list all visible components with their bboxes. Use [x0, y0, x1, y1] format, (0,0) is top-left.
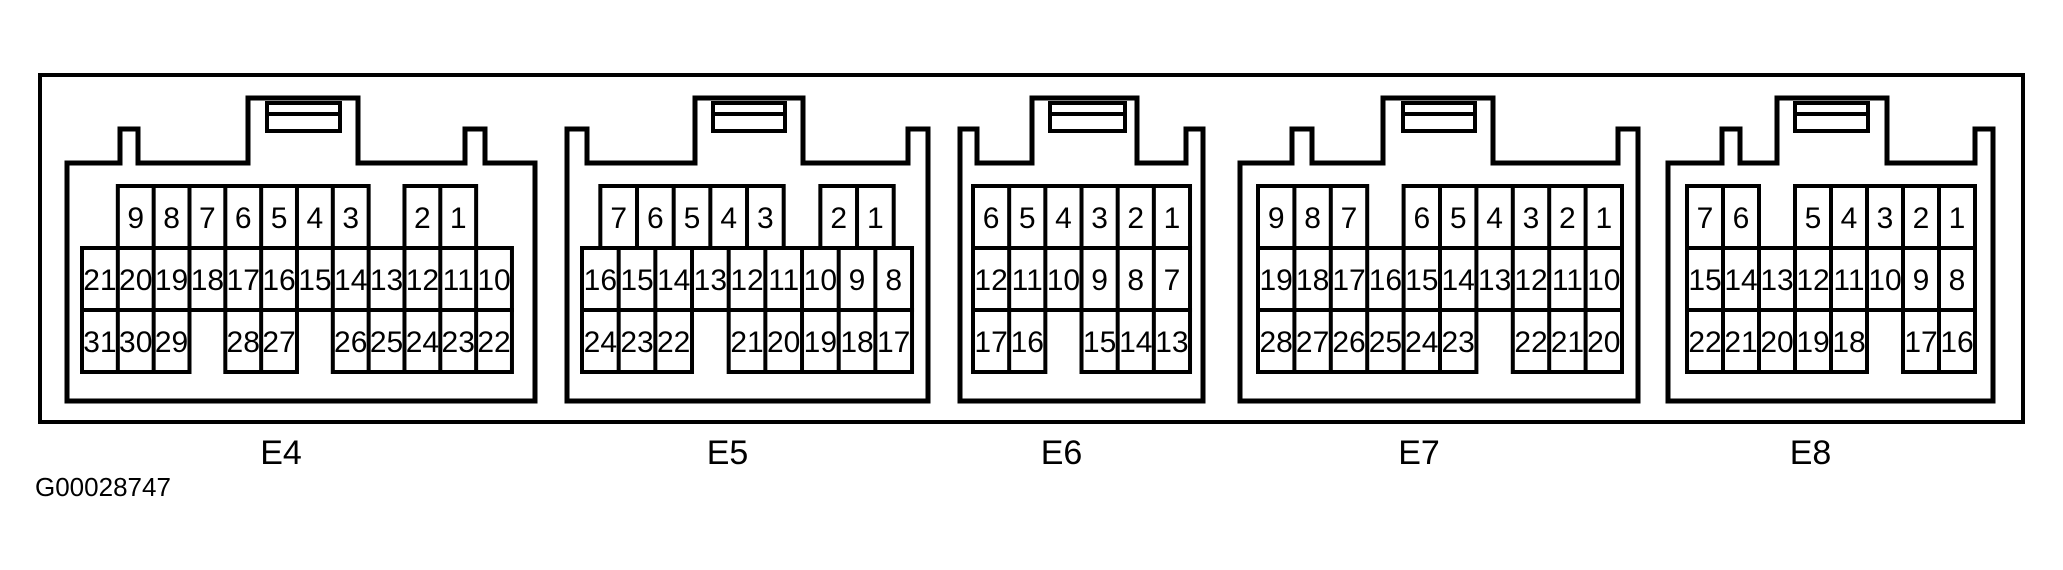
pin-number: 17 [974, 326, 1007, 359]
pin-number: 25 [1369, 326, 1402, 359]
pin-number: 1 [1949, 202, 1966, 235]
pin-number: 14 [1119, 326, 1152, 359]
pin-number: 21 [83, 264, 116, 297]
pin-number: 24 [406, 326, 439, 359]
pin-number: 12 [1514, 264, 1547, 297]
pin-number: 18 [840, 326, 873, 359]
connector-E6: 6543211211109871716151413E6 [960, 98, 1203, 472]
pin-number: 14 [657, 264, 690, 297]
pin-number: 24 [1405, 326, 1438, 359]
pin-group-middle: 1615141312111098 [582, 248, 912, 310]
pin-group-top: 21 [820, 186, 893, 248]
pin-number: 17 [877, 326, 910, 359]
pin-number: 6 [983, 202, 1000, 235]
connector-E8: 76543211514131211109822212019181716E8 [1668, 98, 1993, 472]
pin-number: 15 [620, 264, 653, 297]
pin-number: 15 [1688, 264, 1721, 297]
pin-number: 8 [163, 202, 180, 235]
pin-number: 17 [1332, 264, 1365, 297]
pin-number: 2 [1913, 202, 1930, 235]
pin-number: 22 [657, 326, 690, 359]
connector-E4: 9876543212120191817161514131211103130292… [67, 98, 535, 472]
pin-number: 13 [1478, 264, 1511, 297]
pin-number: 6 [1413, 202, 1430, 235]
pin-number: 5 [1805, 202, 1822, 235]
pin-number: 14 [334, 264, 367, 297]
pin-number: 26 [334, 326, 367, 359]
pin-number: 14 [1442, 264, 1475, 297]
pin-group-top: 654321 [973, 186, 1190, 248]
pin-number: 13 [1155, 326, 1188, 359]
pin-number: 29 [155, 326, 188, 359]
pin-number: 18 [1832, 326, 1865, 359]
pin-number: 7 [1697, 202, 1714, 235]
connector-pinout-figure: 9876543212120191817161514131211103130292… [0, 0, 2063, 570]
pin-group-middle: 15141312111098 [1687, 248, 1975, 310]
pin-number: 13 [370, 264, 403, 297]
pin-number: 5 [1450, 202, 1467, 235]
pin-number: 4 [1486, 202, 1503, 235]
pin-number: 16 [1940, 326, 1973, 359]
pin-number: 1 [867, 202, 884, 235]
pin-number: 28 [1260, 326, 1293, 359]
pin-number: 7 [1164, 264, 1181, 297]
figure-code: G00028747 [35, 472, 171, 503]
pin-number: 5 [684, 202, 701, 235]
connector-label: E4 [260, 434, 302, 472]
pin-group-top: 987 [1258, 186, 1367, 248]
pin-number: 20 [1587, 326, 1620, 359]
connector-E7: 9876543211918171615141312111028272625242… [1240, 98, 1638, 472]
pin-number: 15 [298, 264, 331, 297]
pin-group-bottom: 313029 [82, 310, 189, 372]
pin-number: 17 [227, 264, 260, 297]
pin-number: 4 [1841, 202, 1858, 235]
pin-number: 6 [647, 202, 664, 235]
connector-label: E7 [1398, 434, 1440, 472]
pin-group-bottom: 1716 [973, 310, 1045, 372]
pinout-diagram: 9876543212120191817161514131211103130292… [0, 0, 2063, 570]
pin-number: 8 [885, 264, 902, 297]
pin-number: 3 [342, 202, 359, 235]
pin-number: 1 [1595, 202, 1612, 235]
pin-group-middle: 19181716151413121110 [1258, 248, 1622, 310]
pin-number: 24 [584, 326, 617, 359]
pin-number: 6 [1733, 202, 1750, 235]
pin-number: 3 [1523, 202, 1540, 235]
pin-number: 2 [1559, 202, 1576, 235]
pin-number: 9 [1268, 202, 1285, 235]
pin-number: 3 [1877, 202, 1894, 235]
pin-group-bottom: 1716 [1903, 310, 1975, 372]
pin-number: 23 [442, 326, 475, 359]
pin-number: 10 [477, 264, 510, 297]
pin-number: 7 [610, 202, 627, 235]
pin-number: 27 [1296, 326, 1329, 359]
pin-number: 2 [1127, 202, 1144, 235]
pin-group-middle: 212019181716151413121110 [82, 248, 512, 310]
pin-number: 19 [155, 264, 188, 297]
pin-number: 7 [199, 202, 216, 235]
pin-number: 16 [262, 264, 295, 297]
pin-number: 19 [804, 326, 837, 359]
pin-group-top: 21 [404, 186, 476, 248]
pin-number: 7 [1341, 202, 1358, 235]
pin-number: 10 [1868, 264, 1901, 297]
pin-number: 13 [694, 264, 727, 297]
pin-group-top: 9876543 [118, 186, 369, 248]
pin-number: 21 [1724, 326, 1757, 359]
pin-number: 11 [1833, 264, 1864, 297]
pin-number: 27 [262, 326, 295, 359]
pin-number: 28 [227, 326, 260, 359]
pin-group-top: 76 [1687, 186, 1759, 248]
pin-group-top: 76543 [600, 186, 783, 248]
pin-number: 22 [1688, 326, 1721, 359]
pin-number: 4 [307, 202, 324, 235]
pin-number: 22 [1514, 326, 1547, 359]
pin-number: 17 [1904, 326, 1937, 359]
pin-group-bottom: 2625242322 [333, 310, 512, 372]
pin-number: 5 [1019, 202, 1036, 235]
pin-number: 1 [450, 202, 467, 235]
pin-group-bottom: 242322 [582, 310, 692, 372]
connector-label: E8 [1790, 434, 1832, 472]
pin-number: 23 [620, 326, 653, 359]
connector-E5: 765432116151413121110982423222120191817E… [567, 98, 928, 472]
pin-number: 18 [1296, 264, 1329, 297]
pin-number: 10 [1587, 264, 1620, 297]
pin-number: 30 [119, 326, 152, 359]
pin-number: 18 [191, 264, 224, 297]
pin-number: 9 [1091, 264, 1108, 297]
pin-number: 8 [1304, 202, 1321, 235]
pin-number: 3 [757, 202, 774, 235]
pin-number: 16 [1369, 264, 1402, 297]
pin-number: 4 [1055, 202, 1072, 235]
pin-number: 9 [849, 264, 866, 297]
pin-group-bottom: 2827 [225, 310, 297, 372]
pin-number: 9 [127, 202, 144, 235]
pin-number: 22 [477, 326, 510, 359]
pin-number: 12 [974, 264, 1007, 297]
pin-number: 14 [1724, 264, 1757, 297]
pin-number: 1 [1164, 202, 1181, 235]
pin-group-top: 654321 [1404, 186, 1622, 248]
connector-label: E6 [1041, 434, 1083, 472]
pin-group-bottom: 222120 [1513, 310, 1622, 372]
pin-number: 10 [804, 264, 837, 297]
pin-number: 20 [767, 326, 800, 359]
pin-group-top: 54321 [1795, 186, 1975, 248]
pin-group-bottom: 2221201918 [1687, 310, 1867, 372]
pin-number: 15 [1083, 326, 1116, 359]
pin-number: 11 [768, 264, 799, 297]
pin-number: 16 [1011, 326, 1044, 359]
pin-group-bottom: 282726252423 [1258, 310, 1476, 372]
pin-group-bottom: 2120191817 [729, 310, 912, 372]
pin-group-middle: 121110987 [973, 248, 1190, 310]
pin-number: 4 [720, 202, 737, 235]
pin-number: 6 [235, 202, 252, 235]
pin-number: 16 [584, 264, 617, 297]
pin-number: 2 [414, 202, 431, 235]
pin-number: 5 [271, 202, 288, 235]
pin-number: 3 [1091, 202, 1108, 235]
pin-number: 12 [730, 264, 763, 297]
pin-number: 10 [1047, 264, 1080, 297]
pin-number: 9 [1913, 264, 1930, 297]
pin-number: 21 [1551, 326, 1584, 359]
pin-number: 31 [83, 326, 116, 359]
pin-number: 15 [1405, 264, 1438, 297]
pin-number: 19 [1796, 326, 1829, 359]
pin-number: 23 [1442, 326, 1475, 359]
pin-number: 20 [119, 264, 152, 297]
pin-number: 11 [1012, 264, 1043, 297]
pin-number: 8 [1949, 264, 1966, 297]
pin-number: 12 [406, 264, 439, 297]
pin-number: 20 [1760, 326, 1793, 359]
pin-number: 11 [443, 264, 474, 297]
pin-number: 19 [1260, 264, 1293, 297]
pin-number: 13 [1760, 264, 1793, 297]
pin-number: 8 [1127, 264, 1144, 297]
pin-group-bottom: 151413 [1082, 310, 1191, 372]
pin-number: 25 [370, 326, 403, 359]
pin-number: 11 [1552, 264, 1583, 297]
pin-number: 12 [1796, 264, 1829, 297]
pin-number: 21 [730, 326, 763, 359]
pin-number: 2 [830, 202, 847, 235]
pin-number: 26 [1332, 326, 1365, 359]
connector-label: E5 [707, 434, 749, 472]
